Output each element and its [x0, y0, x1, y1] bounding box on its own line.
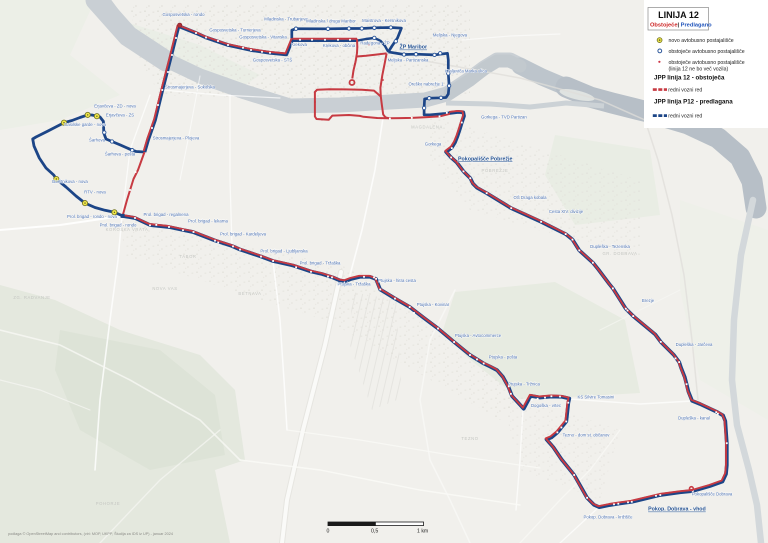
svg-text:Pokopališče Pobrežje: Pokopališče Pobrežje	[458, 156, 513, 162]
svg-text:0: 0	[327, 529, 330, 535]
svg-text:Gorkega - TVD Partizan: Gorkega - TVD Partizan	[481, 114, 527, 119]
svg-text:Ptujska - pošta: Ptujska - pošta	[489, 354, 518, 359]
svg-text:Ptujska - Tržnica: Ptujska - Tržnica	[508, 381, 540, 386]
svg-text:Prol. brigad - Ljubljanska: Prol. brigad - Ljubljanska	[260, 249, 308, 254]
svg-text:OŠ Draga kobala: OŠ Draga kobala	[514, 195, 548, 200]
svg-text:obstoječe avtobusno postajališ: obstoječe avtobusno postajališče	[669, 60, 745, 66]
svg-text:Pokop. Dobrava - križišče: Pokop. Dobrava - križišče	[584, 515, 634, 520]
svg-text:Prol. brigad - rondo: Prol. brigad - rondo	[100, 222, 137, 227]
svg-text:Oreško nabrežje 1: Oreško nabrežje 1	[408, 82, 444, 87]
svg-text:redni vozni red: redni vozni red	[668, 88, 702, 94]
svg-text:Erjavčeva - ZD - nova: Erjavčeva - ZD - nova	[94, 104, 136, 109]
svg-text:Ptujska - Kovinar: Ptujska - Kovinar	[417, 302, 450, 307]
svg-text:Mladinska - Trubarjeva: Mladinska - Trubarjeva	[264, 17, 308, 22]
svg-text:Maistrova - Kersnikova: Maistrova - Kersnikova	[362, 18, 406, 23]
svg-text:Dupleška - kanal: Dupleška - kanal	[678, 416, 710, 421]
svg-text:Prol. brigad - Tržaška: Prol. brigad - Tržaška	[300, 261, 341, 266]
svg-text:Prol. brigad - lekarna: Prol. brigad - lekarna	[188, 218, 228, 223]
svg-text:TEZNO: TEZNO	[461, 436, 478, 441]
svg-text:Brezje: Brezje	[642, 298, 655, 303]
svg-text:NOVA VAS: NOVA VAS	[152, 286, 177, 291]
svg-text:Ptujska - hitra cesta: Ptujska - hitra cesta	[378, 278, 416, 283]
svg-text:RTV - nova: RTV - nova	[84, 190, 106, 195]
svg-text:novo avtobusno postajališče: novo avtobusno postajališče	[669, 38, 734, 44]
svg-text:ZG. RADVANJE: ZG. RADVANJE	[13, 295, 50, 300]
svg-text:POHORJE: POHORJE	[96, 501, 120, 506]
svg-text:Gorkega: Gorkega	[425, 142, 442, 147]
svg-text:Šarhova - pošta: Šarhova - pošta	[105, 152, 136, 157]
svg-text:1 km: 1 km	[417, 529, 428, 535]
svg-text:Meljska - Njegova: Meljska - Njegova	[433, 32, 468, 37]
svg-text:Radegona - ŽP: Radegona - ŽP	[360, 40, 389, 45]
svg-text:Tezno - dom st. občanov: Tezno - dom st. občanov	[563, 433, 611, 438]
svg-text:MAGDALENA: MAGDALENA	[411, 125, 443, 130]
svg-text:obstoječe avtobusno postajališ: obstoječe avtobusno postajališče	[669, 49, 745, 55]
svg-text:podlaga © OpenStreetMap and co: podlaga © OpenStreetMap and contributors…	[8, 531, 173, 536]
svg-text:Gosposvetska - Vitanska: Gosposvetska - Vitanska	[239, 34, 287, 39]
svg-text:Dupleška - Tezenska: Dupleška - Tezenska	[590, 244, 630, 249]
svg-text:Kraljeviča Marka ulica: Kraljeviča Marka ulica	[445, 68, 487, 73]
svg-text:Pokop. Dobrava - vhod: Pokop. Dobrava - vhod	[648, 507, 706, 513]
svg-text:Ptujska - Tržaška: Ptujska - Tržaška	[338, 281, 372, 286]
svg-text:Krekova: Krekova	[291, 42, 307, 47]
svg-text:KOROŠKA VRATA: KOROŠKA VRATA	[106, 227, 149, 232]
svg-text:LINIJA 12: LINIJA 12	[658, 10, 699, 20]
svg-text:Strosmajerjeva - Sokolska: Strosmajerjeva - Sokolska	[165, 85, 216, 90]
svg-text:Gosposvetska - rondo: Gosposvetska - rondo	[162, 12, 205, 17]
svg-text:Prol. brigad - regalnena: Prol. brigad - regalnena	[144, 212, 190, 217]
svg-text:POBREŽJE: POBREŽJE	[482, 168, 509, 173]
svg-text:Meljska - Partizanska: Meljska - Partizanska	[388, 57, 429, 62]
svg-text:Obstoječe| Predlagano: Obstoječe| Predlagano	[650, 22, 712, 28]
svg-text:KS Silvire Tomasini: KS Silvire Tomasini	[578, 394, 615, 399]
svg-text:Gosposvetska - Turnerjeva: Gosposvetska - Turnerjeva	[209, 28, 261, 33]
svg-text:Šarhova: Šarhova	[89, 137, 106, 142]
svg-text:Pokopališče Dobrava: Pokopališče Dobrava	[692, 491, 733, 496]
svg-text:Prol. brigad - Kardeljeva: Prol. brigad - Kardeljeva	[220, 232, 267, 237]
svg-text:Gosposvetska - STŠ: Gosposvetska - STŠ	[253, 58, 293, 63]
svg-text:Gasilske garde - nova: Gasilske garde - nova	[64, 122, 106, 127]
svg-text:JPP linija P12 - predlagana: JPP linija P12 - predlagana	[654, 99, 733, 106]
svg-text:Prol. brigad - rondo - nova: Prol. brigad - rondo - nova	[67, 214, 118, 219]
svg-text:Cesta XIV. divizije: Cesta XIV. divizije	[549, 209, 584, 214]
svg-text:JPP linija 12 - obstoječa: JPP linija 12 - obstoječa	[654, 75, 725, 82]
svg-text:BETNAVA: BETNAVA	[238, 291, 261, 296]
svg-text:Borštnikova - nova: Borštnikova - nova	[52, 179, 88, 184]
svg-text:GR. DOBRAVA: GR. DOBRAVA	[602, 251, 637, 256]
svg-text:Krekova - občina: Krekova - občina	[323, 43, 356, 48]
svg-text:Dogoška - vrtec: Dogoška - vrtec	[531, 403, 562, 408]
svg-text:Strosmajerjeva - Plojeva: Strosmajerjeva - Plojeva	[153, 135, 200, 140]
svg-text:ŽP Maribor: ŽP Maribor	[400, 43, 428, 51]
svg-text:redni vozni red: redni vozni red	[668, 114, 702, 120]
svg-text:TABOR: TABOR	[179, 254, 196, 259]
svg-text:Mladinska / druga Maribor: Mladinska / druga Maribor	[306, 19, 356, 24]
svg-text:Erjavčeva - ZS: Erjavčeva - ZS	[106, 113, 134, 118]
svg-text:Ptujska - Avtocommerce: Ptujska - Avtocommerce	[455, 333, 502, 338]
svg-text:Dupleška - Jarčeva: Dupleška - Jarčeva	[676, 342, 713, 347]
svg-text:0,5: 0,5	[371, 529, 378, 535]
svg-text:(linija 12 ne bo več vozila): (linija 12 ne bo več vozila)	[669, 66, 729, 72]
